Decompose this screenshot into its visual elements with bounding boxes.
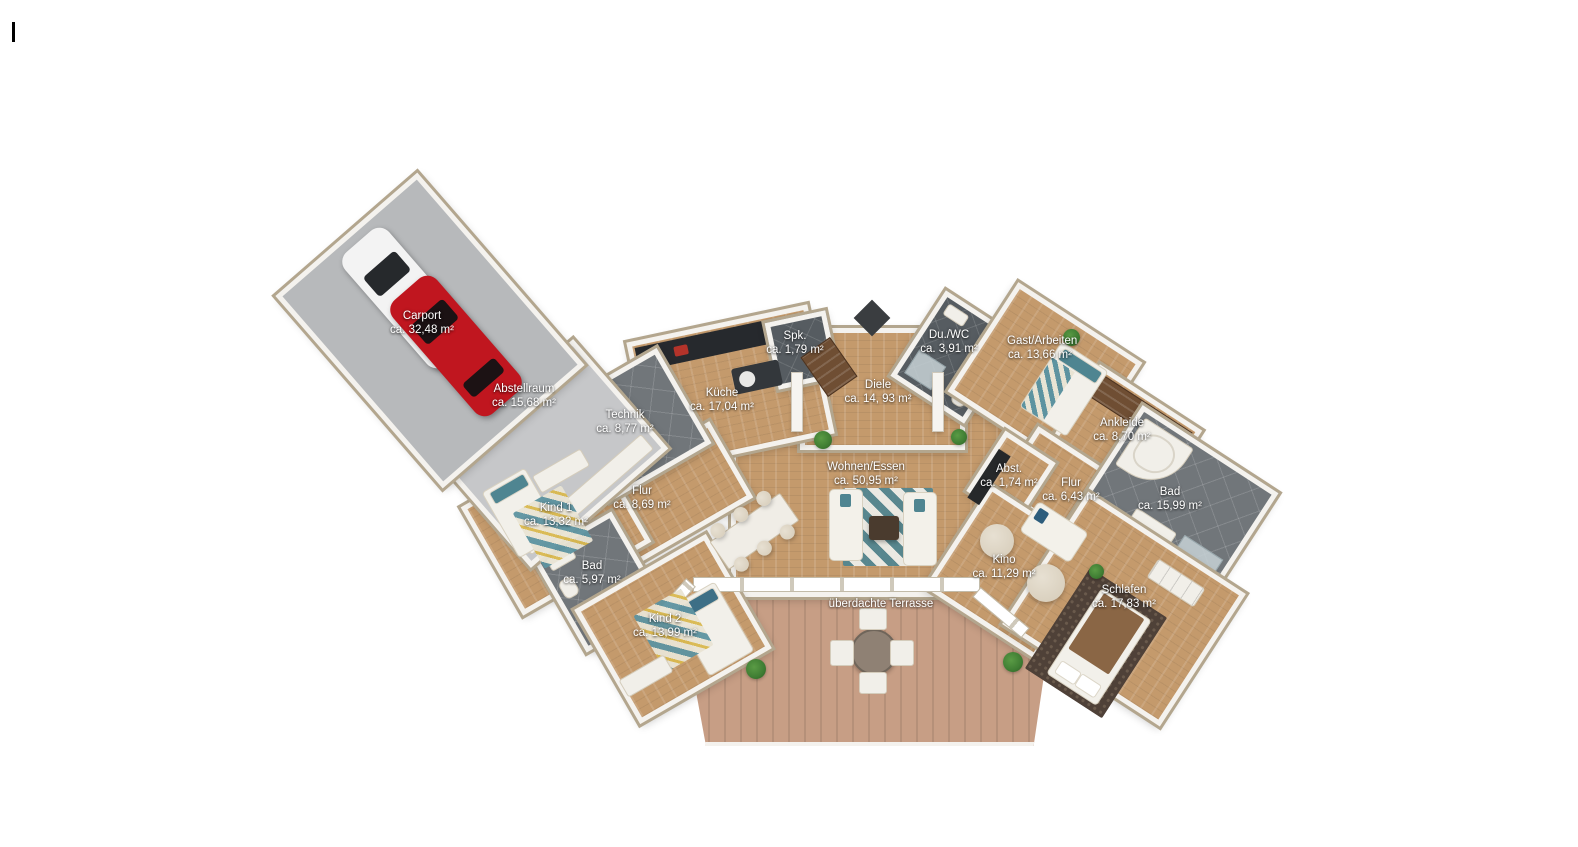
wall-stub [933, 373, 943, 431]
terrace-chair [830, 640, 854, 666]
island-sink [738, 370, 757, 389]
text-cursor [12, 22, 15, 42]
windshield [411, 298, 460, 345]
potted-plant [746, 659, 766, 679]
potted-plant [1089, 564, 1104, 579]
terrace-chair [859, 608, 887, 630]
cooktop [673, 344, 689, 357]
pillow [1033, 507, 1049, 524]
beanbag [1027, 564, 1065, 602]
wall-stub [792, 373, 802, 431]
potted-plant [1063, 329, 1080, 346]
potted-plant [1003, 652, 1023, 672]
terrace-chair [859, 672, 887, 694]
tub-basin [1127, 428, 1181, 482]
sofa [829, 489, 863, 561]
potted-plant [951, 429, 967, 445]
pillow [840, 494, 851, 507]
rear-window [462, 357, 505, 398]
toilet [557, 575, 581, 600]
pillow [914, 499, 925, 512]
sink [942, 303, 969, 327]
bed-pillow [1074, 673, 1102, 699]
sofa [903, 492, 937, 566]
terrace-chair [890, 640, 914, 666]
potted-plant [814, 431, 832, 449]
terrace-window-band [693, 577, 980, 592]
floorplan-canvas: Carport ca. 32,48 m² Abstellraum ca. 15,… [0, 0, 1578, 847]
coffee-table [869, 516, 899, 540]
beanbag [980, 524, 1014, 558]
